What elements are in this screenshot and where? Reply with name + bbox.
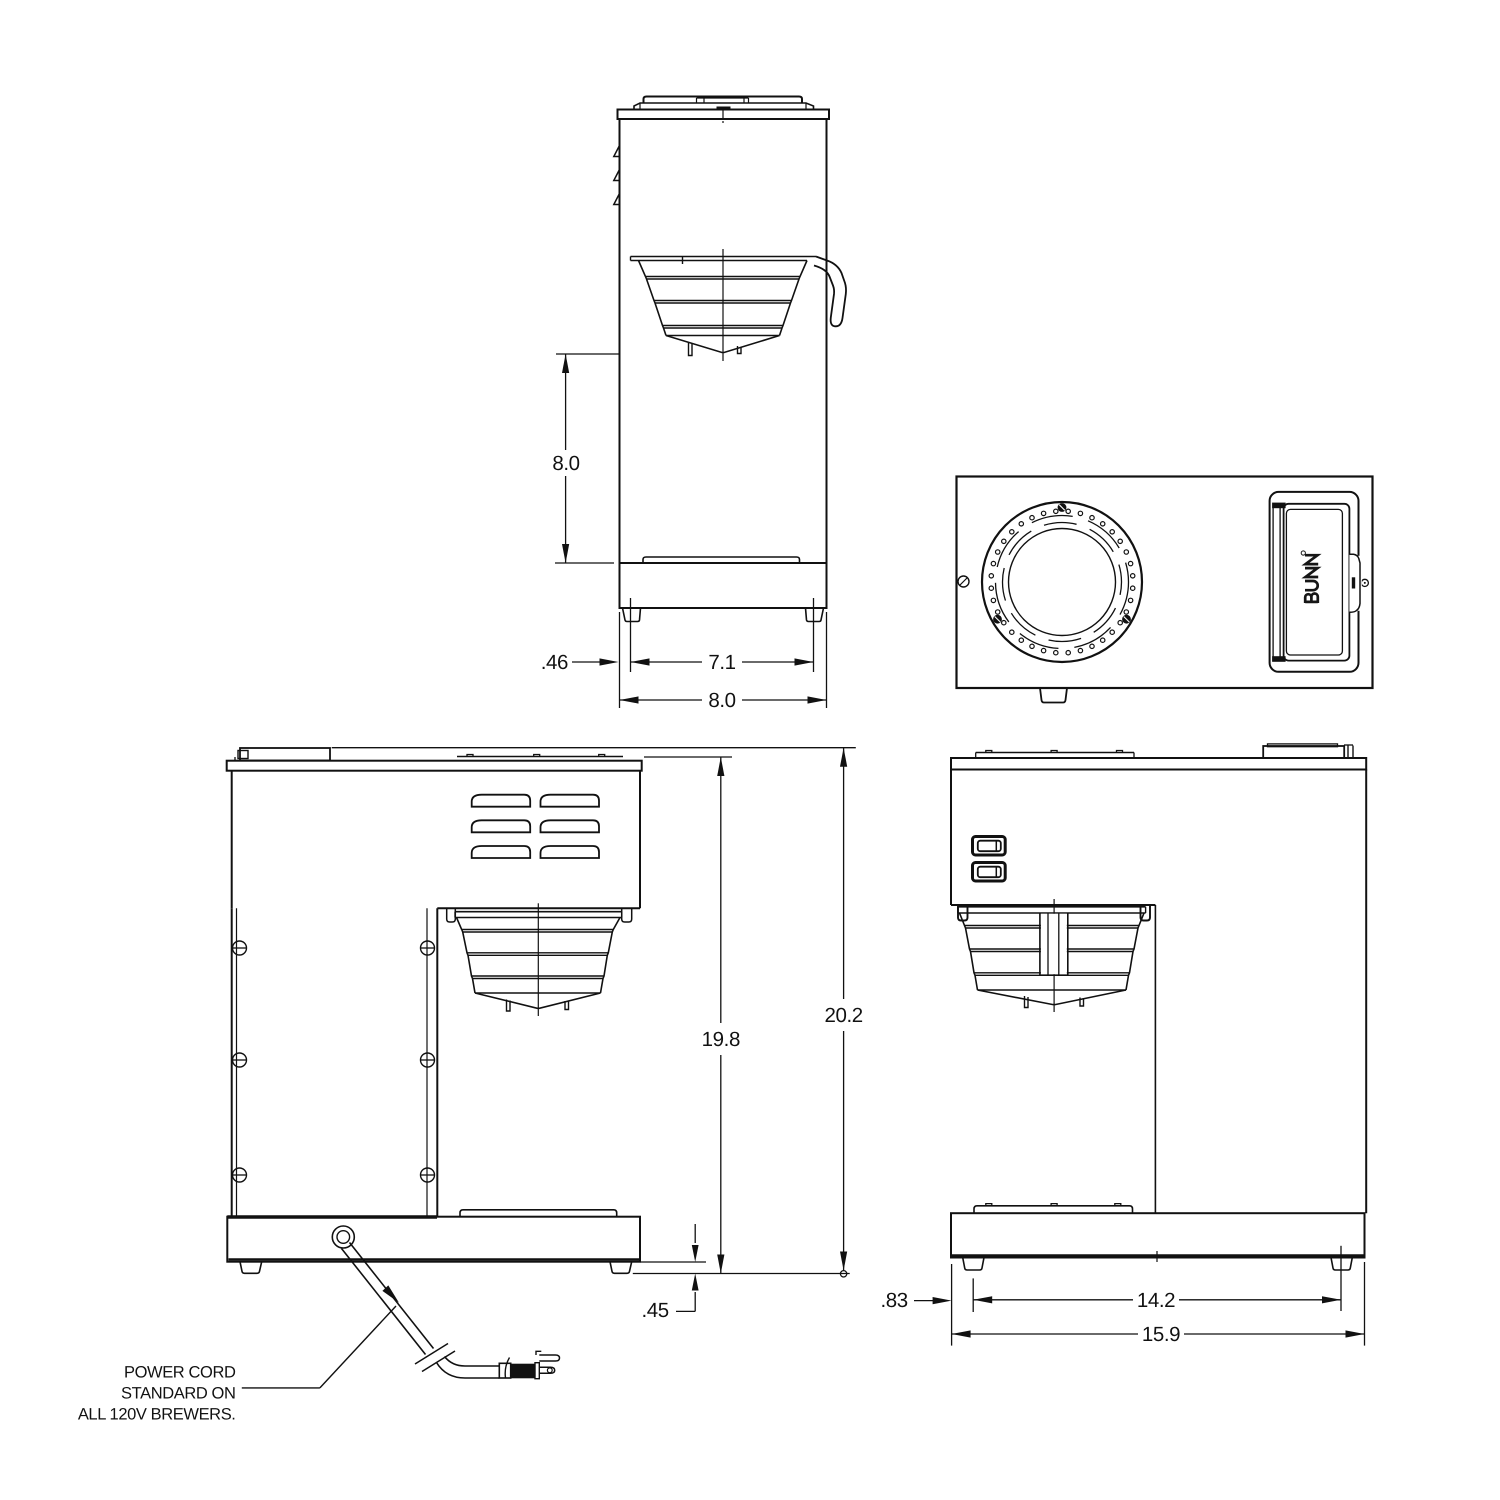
svg-text:19.8: 19.8 [702,1028,740,1051]
svg-text:7.1: 7.1 [708,651,735,674]
svg-text:POWER CORD: POWER CORD [124,1364,236,1382]
svg-text:ALL 120V BREWERS.: ALL 120V BREWERS. [78,1406,236,1424]
svg-text:.83: .83 [880,1289,907,1312]
svg-text:.45: .45 [641,1299,668,1322]
svg-text:.46: .46 [541,651,568,674]
svg-text:8.0: 8.0 [708,689,735,712]
svg-text:8.0: 8.0 [552,452,579,475]
svg-text:14.2: 14.2 [1137,1289,1175,1312]
svg-text:15.9: 15.9 [1142,1323,1180,1346]
svg-text:STANDARD ON: STANDARD ON [121,1385,235,1403]
svg-text:20.2: 20.2 [824,1004,862,1027]
